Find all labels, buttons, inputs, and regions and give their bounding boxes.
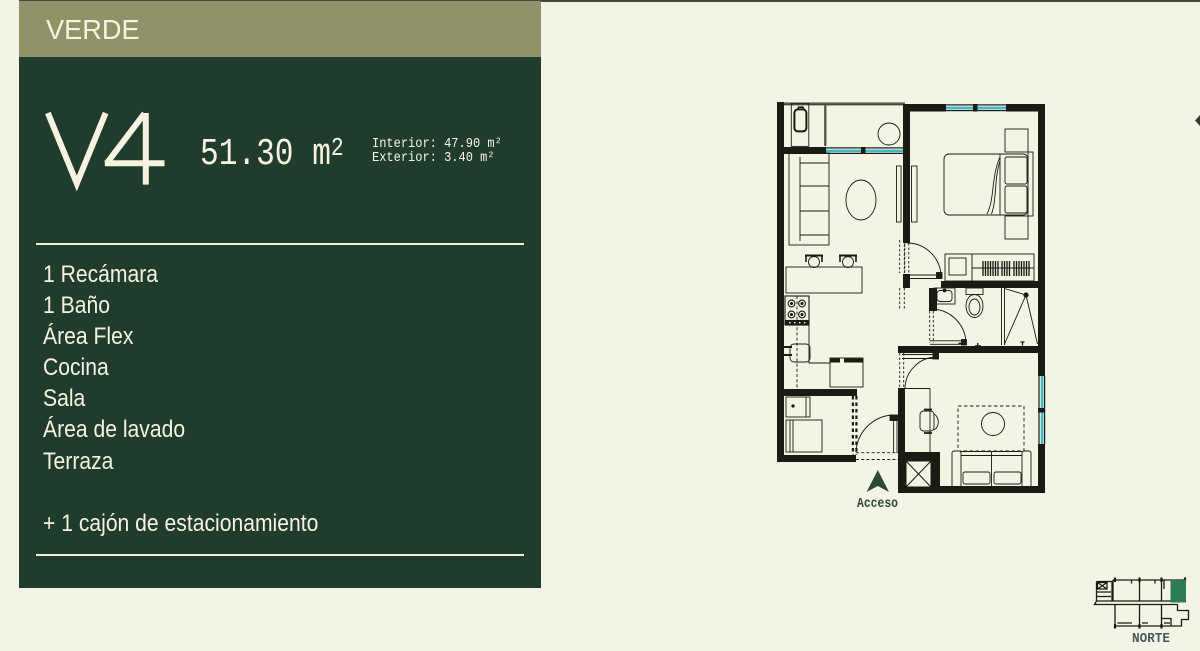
svg-text:NORTE: NORTE (1132, 631, 1170, 647)
svg-text:Acceso: Acceso (857, 496, 898, 512)
